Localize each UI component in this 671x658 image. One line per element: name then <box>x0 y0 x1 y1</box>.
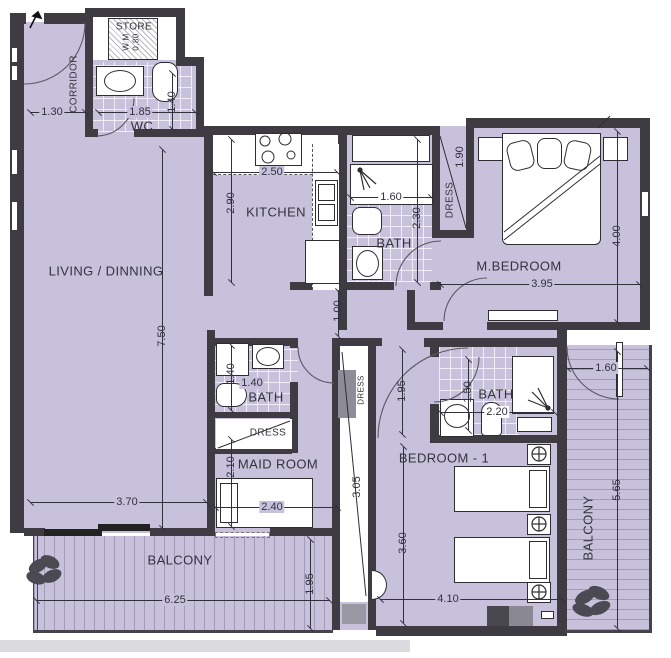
dim-label: 7.50 <box>156 325 168 346</box>
wall <box>640 118 650 330</box>
bed1-dresser <box>487 606 509 626</box>
room-label-wc: WC <box>131 119 153 134</box>
dim-label: 1.90 <box>454 146 466 167</box>
wall <box>376 626 567 636</box>
dim-label: 3.70 <box>114 496 139 508</box>
wall <box>85 8 93 137</box>
wall <box>204 126 213 296</box>
pillow <box>537 138 562 169</box>
wall <box>150 528 215 536</box>
wall <box>346 282 394 290</box>
dim-label: 1.00 <box>332 300 344 321</box>
dim-label: 1.40 <box>239 377 264 389</box>
balcony-bottom-deck <box>34 536 332 630</box>
stove <box>255 133 302 166</box>
dim-label: 1.60 <box>593 362 618 374</box>
dim-label: 3.05 <box>351 476 363 497</box>
wall <box>290 338 298 348</box>
pillow <box>529 470 547 508</box>
sidewalk-strip <box>0 640 410 652</box>
dim-line <box>380 599 563 600</box>
wall <box>196 60 204 137</box>
room-label-wm: W.M <box>122 33 131 50</box>
dress-hall-cabinet <box>338 370 356 418</box>
dim-label: 1.40 <box>225 363 237 384</box>
wall <box>24 528 45 536</box>
room-label-balcony-bottom: BALCONY <box>148 553 213 568</box>
dim-label: 1.95 <box>396 380 408 401</box>
fridge <box>305 240 340 284</box>
window <box>12 202 17 230</box>
wall <box>466 126 474 230</box>
pillow <box>529 541 547 579</box>
dim-label: 2.30 <box>411 207 423 228</box>
dim-label: 3.60 <box>397 532 409 553</box>
dim-label: 4.10 <box>435 593 460 605</box>
room-label-bath-top: BATH <box>376 236 411 251</box>
railing <box>565 630 652 633</box>
bath-bed1-washbasin <box>444 404 470 428</box>
sliding-door-dashed <box>215 532 270 538</box>
room-label-dress-master: DRESS <box>445 182 456 218</box>
room-label-living: LIVING / DINNING <box>49 264 164 279</box>
dim-label: 6.25 <box>162 594 187 606</box>
sliding-door-panel <box>44 529 102 536</box>
nightstand <box>527 514 551 535</box>
mbed-dresser <box>488 310 558 321</box>
dim-label: 3.95 <box>529 278 554 290</box>
dim-label: 2.40 <box>259 501 284 513</box>
wall <box>487 322 648 330</box>
railing <box>649 345 652 633</box>
wall <box>44 13 86 24</box>
window <box>12 48 17 62</box>
bath-top-washbasin <box>356 250 379 277</box>
wall <box>207 330 215 528</box>
kitchen-sink-basin <box>318 204 335 221</box>
dim-label: 1.85 <box>127 106 152 118</box>
room-label-bath-maid: BATH <box>248 390 283 405</box>
pillow <box>220 483 238 523</box>
dim-label: 2.90 <box>225 192 237 213</box>
floor-plan: 1.30 1.85 1.40 2.50 2.90 1.60 2.30 1.90 … <box>0 0 671 658</box>
wall <box>407 290 415 330</box>
room-label-maidroom: MAID ROOM <box>238 457 318 472</box>
wall <box>432 126 440 238</box>
bath-top-toilet <box>352 207 382 235</box>
bath-maid-washbasin <box>256 347 280 366</box>
bed1-dresser <box>509 606 533 626</box>
wall <box>85 8 184 17</box>
dim-label: 2.20 <box>484 406 509 418</box>
room-label-store: STORE <box>116 22 152 33</box>
wall <box>424 338 567 347</box>
dim-label: 2.10 <box>225 456 237 477</box>
dim-line <box>231 440 232 526</box>
dim-label: 4.00 <box>611 225 623 246</box>
dim-label: 1.40 <box>166 91 178 112</box>
kitchen-sink-basin <box>318 184 335 201</box>
window <box>12 66 17 80</box>
dim-label: 2.50 <box>259 166 284 178</box>
dim-label: 1.30 <box>39 106 64 118</box>
wall <box>85 129 98 137</box>
room-label-kitchen: KITCHEN <box>246 205 306 220</box>
railing <box>37 536 38 631</box>
wall <box>557 330 567 636</box>
sliding-door-panel <box>98 524 150 531</box>
nightstand <box>478 137 503 161</box>
wall <box>430 347 439 357</box>
wc-washbasin <box>104 70 136 92</box>
room-label-corridor: CORRIDOR <box>69 55 80 113</box>
nightstand <box>527 444 551 465</box>
room-label-balcony-right: BALCONY <box>581 496 596 561</box>
room-label-mbedroom: M.BEDROOM <box>476 259 561 274</box>
dim-label: 1.95 <box>304 573 316 594</box>
bath-bed1-bench <box>517 417 552 432</box>
floor-living-kitchen <box>24 135 344 533</box>
dim-label: 5.65 <box>611 479 623 500</box>
wall <box>270 528 332 536</box>
room-label-bedroom1: BEDROOM - 1 <box>399 451 489 466</box>
wall <box>432 230 474 238</box>
balcony-right-deck <box>565 345 650 630</box>
wall <box>10 13 24 533</box>
wall <box>368 338 382 346</box>
wall <box>213 412 292 418</box>
railing <box>33 630 333 633</box>
room-label-bath-bed1: BATH <box>478 387 513 402</box>
nightstand <box>603 137 628 161</box>
bath-bed1-shower <box>512 356 554 414</box>
dim-label: 1.50 <box>462 381 474 402</box>
railing <box>33 536 34 631</box>
duct-box <box>342 604 366 624</box>
dim-label: 1.60 <box>378 191 403 203</box>
wall <box>346 126 440 135</box>
room-label-wm-dim: 0.80 <box>132 33 141 50</box>
wall <box>466 118 648 128</box>
window <box>642 192 648 216</box>
room-label-dress-maid: DRESS <box>250 428 286 439</box>
room-label-dress-hall: DRESS <box>357 375 366 405</box>
bed1-shelf <box>541 611 554 619</box>
window <box>12 150 17 174</box>
